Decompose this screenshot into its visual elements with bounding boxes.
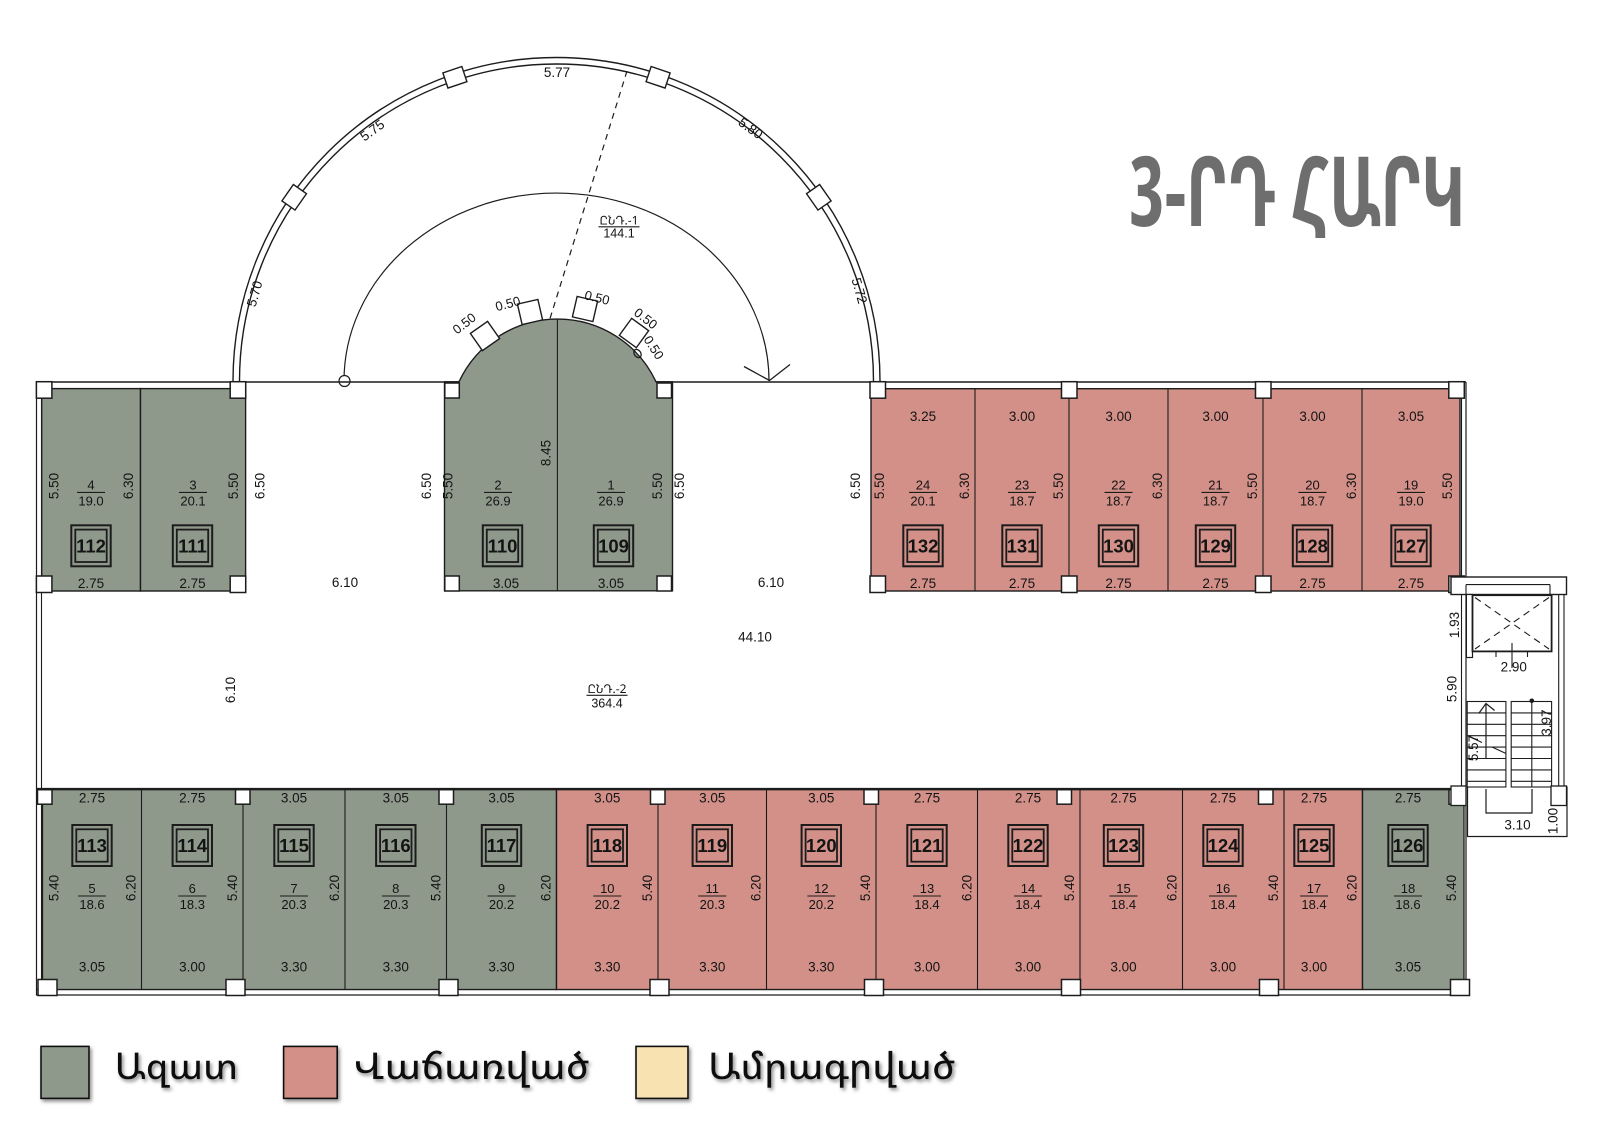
svg-text:20.3: 20.3	[281, 897, 306, 912]
svg-text:22: 22	[1111, 477, 1125, 492]
svg-text:5.40: 5.40	[1266, 875, 1281, 901]
svg-text:6.20: 6.20	[1345, 875, 1360, 901]
svg-text:3.00: 3.00	[914, 960, 940, 975]
svg-text:112: 112	[76, 535, 106, 556]
svg-text:3.05: 3.05	[1398, 409, 1424, 424]
svg-text:4: 4	[87, 477, 94, 492]
svg-text:6.50: 6.50	[253, 473, 268, 499]
svg-text:6.10: 6.10	[758, 575, 784, 590]
svg-text:6.20: 6.20	[749, 875, 764, 901]
svg-text:6.50: 6.50	[672, 473, 687, 499]
svg-text:6.50: 6.50	[419, 473, 434, 499]
svg-text:19: 19	[1404, 477, 1418, 492]
svg-text:122: 122	[1013, 835, 1044, 856]
svg-text:23: 23	[1015, 477, 1029, 492]
svg-text:18.4: 18.4	[1301, 897, 1326, 912]
svg-text:14: 14	[1021, 881, 1035, 896]
svg-text:18.6: 18.6	[79, 897, 104, 912]
svg-text:2.75: 2.75	[179, 791, 205, 806]
svg-text:115: 115	[279, 835, 309, 856]
svg-text:5.40: 5.40	[225, 875, 240, 901]
svg-text:2.75: 2.75	[1105, 576, 1131, 591]
svg-text:18.3: 18.3	[180, 897, 205, 912]
svg-text:3.05: 3.05	[1395, 960, 1421, 975]
svg-text:11: 11	[706, 881, 720, 896]
svg-text:3.00: 3.00	[1105, 409, 1131, 424]
svg-text:2.75: 2.75	[1395, 791, 1421, 806]
svg-text:6.20: 6.20	[327, 875, 342, 901]
svg-text:9: 9	[498, 881, 505, 896]
svg-text:3.05: 3.05	[594, 791, 620, 806]
svg-text:3.00: 3.00	[1299, 409, 1325, 424]
svg-text:3.05: 3.05	[699, 791, 725, 806]
svg-text:3.00: 3.00	[1009, 409, 1035, 424]
svg-text:20.3: 20.3	[383, 897, 408, 912]
svg-text:1.93: 1.93	[1447, 612, 1462, 638]
svg-text:2: 2	[494, 477, 501, 492]
svg-text:5.40: 5.40	[47, 875, 62, 901]
svg-text:20.2: 20.2	[809, 897, 834, 912]
svg-text:123: 123	[1108, 835, 1139, 856]
svg-text:113: 113	[77, 835, 107, 856]
svg-text:1.00: 1.00	[1546, 808, 1561, 834]
svg-text:5.50: 5.50	[226, 473, 241, 499]
svg-text:15: 15	[1116, 881, 1130, 896]
svg-text:18.4: 18.4	[1210, 897, 1235, 912]
svg-text:6.30: 6.30	[1150, 473, 1165, 499]
svg-text:2.75: 2.75	[1299, 576, 1325, 591]
svg-text:3.05: 3.05	[808, 791, 834, 806]
svg-text:5.50: 5.50	[441, 473, 456, 499]
svg-text:17: 17	[1307, 881, 1321, 896]
svg-text:3.30: 3.30	[383, 960, 409, 975]
svg-text:10: 10	[600, 881, 614, 896]
svg-text:2.75: 2.75	[1015, 791, 1041, 806]
svg-text:8: 8	[392, 881, 399, 896]
svg-text:114: 114	[177, 835, 208, 856]
svg-text:2.75: 2.75	[910, 576, 936, 591]
svg-text:3.00: 3.00	[179, 960, 205, 975]
svg-text:2.75: 2.75	[914, 791, 940, 806]
svg-text:2.75: 2.75	[78, 576, 104, 591]
svg-text:3.00: 3.00	[1015, 960, 1041, 975]
svg-text:5.50: 5.50	[1051, 473, 1066, 499]
svg-text:3.30: 3.30	[594, 960, 620, 975]
svg-text:118: 118	[592, 835, 622, 856]
svg-text:109: 109	[598, 535, 629, 556]
svg-text:3.05: 3.05	[493, 576, 519, 591]
svg-text:2.75: 2.75	[1301, 791, 1327, 806]
svg-text:3.30: 3.30	[699, 960, 725, 975]
svg-text:5.40: 5.40	[1444, 875, 1459, 901]
svg-text:116: 116	[381, 835, 411, 856]
svg-text:18.4: 18.4	[914, 897, 939, 912]
svg-text:6.30: 6.30	[121, 473, 136, 499]
svg-text:5.40: 5.40	[858, 875, 873, 901]
svg-text:18.7: 18.7	[1203, 493, 1228, 508]
svg-text:5.50: 5.50	[47, 473, 62, 499]
svg-text:130: 130	[1103, 535, 1134, 556]
svg-text:21: 21	[1208, 477, 1222, 492]
svg-text:125: 125	[1299, 835, 1330, 856]
svg-text:5.50: 5.50	[1440, 473, 1455, 499]
svg-text:120: 120	[806, 835, 837, 856]
svg-text:19.0: 19.0	[1398, 493, 1423, 508]
svg-text:6.10: 6.10	[223, 677, 238, 703]
svg-text:18.4: 18.4	[1015, 897, 1040, 912]
svg-text:3.25: 3.25	[910, 409, 936, 424]
svg-text:126: 126	[1393, 835, 1424, 856]
svg-text:20: 20	[1305, 477, 1319, 492]
svg-text:364.4: 364.4	[591, 697, 622, 711]
svg-text:3.30: 3.30	[488, 960, 514, 975]
svg-text:6.20: 6.20	[1165, 875, 1180, 901]
svg-text:16: 16	[1216, 881, 1230, 896]
svg-text:6: 6	[189, 881, 196, 896]
svg-text:1: 1	[607, 477, 614, 492]
svg-text:20.1: 20.1	[180, 493, 205, 508]
svg-text:2.75: 2.75	[1009, 576, 1035, 591]
svg-text:3.00: 3.00	[1110, 960, 1136, 975]
svg-text:3.97: 3.97	[1539, 709, 1554, 735]
svg-text:13: 13	[920, 881, 934, 896]
svg-text:2.75: 2.75	[179, 576, 205, 591]
svg-text:3.00: 3.00	[1301, 960, 1327, 975]
svg-text:3.30: 3.30	[808, 960, 834, 975]
svg-text:20.2: 20.2	[595, 897, 620, 912]
svg-text:2.75: 2.75	[1202, 576, 1228, 591]
svg-text:5.40: 5.40	[1062, 875, 1077, 901]
svg-text:3.00: 3.00	[1202, 409, 1228, 424]
svg-text:121: 121	[912, 835, 943, 856]
svg-text:3.05: 3.05	[383, 791, 409, 806]
svg-text:2.75: 2.75	[1398, 576, 1424, 591]
svg-text:3.05: 3.05	[598, 576, 624, 591]
svg-text:6.30: 6.30	[957, 473, 972, 499]
svg-text:5.40: 5.40	[429, 875, 444, 901]
svg-text:7: 7	[290, 881, 297, 896]
svg-text:132: 132	[908, 535, 939, 556]
svg-text:18.7: 18.7	[1300, 493, 1325, 508]
svg-text:3.10: 3.10	[1504, 818, 1530, 833]
svg-text:2.75: 2.75	[1110, 791, 1136, 806]
svg-text:20.3: 20.3	[700, 897, 725, 912]
svg-text:6.20: 6.20	[960, 875, 975, 901]
svg-text:18.7: 18.7	[1009, 493, 1034, 508]
svg-text:111: 111	[178, 535, 207, 556]
svg-text:6.10: 6.10	[332, 575, 358, 590]
svg-text:5.40: 5.40	[640, 875, 655, 901]
svg-text:124: 124	[1208, 835, 1240, 856]
svg-text:5.77: 5.77	[544, 65, 570, 80]
svg-text:18.4: 18.4	[1111, 897, 1136, 912]
svg-text:26.9: 26.9	[485, 493, 510, 508]
svg-text:44.10: 44.10	[738, 630, 772, 645]
svg-text:119: 119	[697, 835, 727, 856]
svg-text:6.30: 6.30	[1344, 473, 1359, 499]
svg-text:5.57: 5.57	[1466, 735, 1481, 761]
svg-text:2.75: 2.75	[79, 791, 105, 806]
svg-text:6.20: 6.20	[539, 875, 554, 901]
svg-text:6.50: 6.50	[848, 473, 863, 499]
svg-text:131: 131	[1007, 535, 1038, 556]
svg-text:3.05: 3.05	[281, 791, 307, 806]
svg-text:3.05: 3.05	[79, 960, 105, 975]
svg-text:26.9: 26.9	[598, 493, 623, 508]
svg-text:5.50: 5.50	[872, 473, 887, 499]
svg-text:110: 110	[488, 535, 518, 556]
svg-text:5.90: 5.90	[1445, 676, 1460, 702]
svg-text:117: 117	[487, 835, 517, 856]
svg-text:24: 24	[916, 477, 930, 492]
svg-text:20.2: 20.2	[489, 897, 514, 912]
svg-text:5: 5	[88, 881, 95, 896]
svg-text:128: 128	[1297, 535, 1328, 556]
svg-text:18: 18	[1401, 881, 1415, 896]
svg-text:5.50: 5.50	[650, 473, 665, 499]
svg-text:3: 3	[189, 477, 196, 492]
svg-text:129: 129	[1200, 535, 1231, 556]
svg-text:2.75: 2.75	[1210, 791, 1236, 806]
svg-text:127: 127	[1396, 535, 1427, 556]
svg-text:18.6: 18.6	[1395, 897, 1420, 912]
svg-text:12: 12	[814, 881, 828, 896]
svg-text:20.1: 20.1	[910, 493, 935, 508]
svg-text:144.1: 144.1	[603, 227, 634, 241]
svg-text:5.50: 5.50	[1245, 473, 1260, 499]
svg-text:19.0: 19.0	[78, 493, 103, 508]
svg-text:2.90: 2.90	[1501, 660, 1527, 675]
svg-text:8.45: 8.45	[539, 440, 554, 466]
svg-text:3.05: 3.05	[488, 791, 514, 806]
svg-text:3.30: 3.30	[281, 960, 307, 975]
svg-text:6.20: 6.20	[124, 875, 139, 901]
svg-text:18.7: 18.7	[1106, 493, 1131, 508]
svg-text:3.00: 3.00	[1210, 960, 1236, 975]
